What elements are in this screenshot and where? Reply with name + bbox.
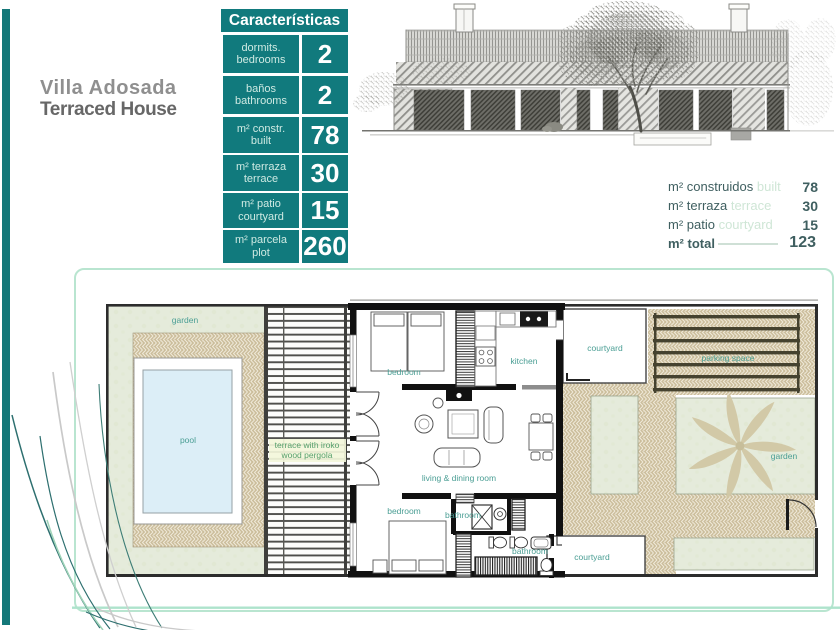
svg-text:bedroom: bedroom	[387, 367, 421, 377]
svg-text:terrace with iroko: terrace with iroko	[275, 440, 340, 450]
svg-text:courtyard: courtyard	[574, 552, 610, 562]
svg-text:living & dining room: living & dining room	[422, 473, 496, 483]
svg-text:courtyard: courtyard	[587, 343, 623, 353]
svg-text:wood pergola: wood pergola	[280, 450, 332, 460]
svg-text:pool: pool	[180, 435, 196, 445]
svg-text:kitchen: kitchen	[511, 356, 538, 366]
svg-text:garden: garden	[172, 315, 199, 325]
svg-text:bedroom: bedroom	[387, 506, 421, 516]
svg-text:garden: garden	[771, 451, 798, 461]
svg-text:parking space: parking space	[702, 353, 755, 363]
svg-text:bathroom: bathroom	[445, 510, 481, 520]
svg-text:bathroom: bathroom	[512, 546, 548, 556]
